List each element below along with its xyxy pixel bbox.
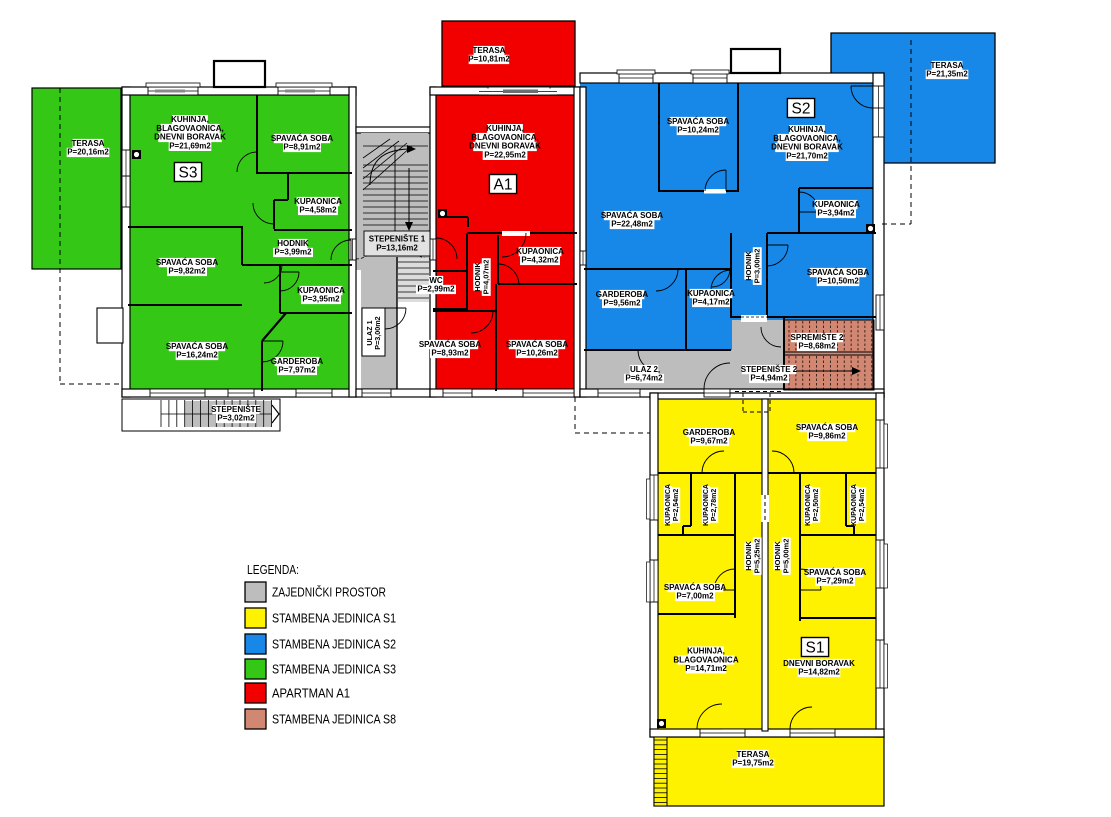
svg-text:DNEVNI BORAVAK: DNEVNI BORAVAK	[771, 143, 843, 152]
svg-text:P=2,99m2: P=2,99m2	[417, 285, 455, 294]
svg-text:TERASA: TERASA	[473, 46, 506, 55]
svg-text:KUPAONICA: KUPAONICA	[851, 484, 858, 526]
svg-text:P=2,78m2: P=2,78m2	[711, 489, 718, 522]
svg-text:P=7,00m2: P=7,00m2	[676, 592, 714, 601]
svg-text:P=9,82m2: P=9,82m2	[168, 267, 206, 276]
svg-text:KUPAONICA: KUPAONICA	[687, 289, 735, 298]
svg-text:DNEVNI BORAVAK: DNEVNI BORAVAK	[154, 133, 226, 142]
svg-text:P=21,70m2: P=21,70m2	[786, 152, 828, 161]
svg-text:STEPENIŠTE: STEPENIŠTE	[211, 405, 261, 414]
svg-text:KUPAONICA: KUPAONICA	[665, 484, 672, 526]
svg-text:P=9,67m2: P=9,67m2	[690, 437, 728, 446]
svg-text:GARDEROBA: GARDEROBA	[683, 428, 736, 437]
svg-text:TERASA: TERASA	[737, 750, 770, 759]
svg-text:SPAVAĆA SOBA: SPAVAĆA SOBA	[601, 211, 664, 220]
svg-text:P=22,95m2: P=22,95m2	[484, 151, 526, 160]
svg-text:KUPAONICA: KUPAONICA	[812, 200, 860, 209]
svg-text:P=8,91m2: P=8,91m2	[283, 143, 321, 152]
svg-text:P=7,29m2: P=7,29m2	[816, 577, 854, 586]
svg-text:TERASA: TERASA	[72, 139, 105, 148]
svg-text:BLAGOVAONICA,: BLAGOVAONICA,	[773, 134, 840, 143]
svg-text:P=20,16m2: P=20,16m2	[67, 148, 109, 157]
svg-text:SPAVAĆA SOBA: SPAVAĆA SOBA	[667, 117, 730, 126]
svg-text:P=14,82m2: P=14,82m2	[798, 668, 840, 677]
svg-text:SPAVAĆA SOBA: SPAVAĆA SOBA	[664, 583, 727, 592]
svg-text:KUHINJA,: KUHINJA,	[788, 125, 826, 134]
svg-text:KUPAONICA: KUPAONICA	[703, 484, 710, 526]
svg-text:P=9,56m2: P=9,56m2	[603, 299, 641, 308]
svg-text:P=4,07m2: P=4,07m2	[481, 260, 490, 295]
svg-text:TERASA: TERASA	[931, 61, 964, 70]
svg-text:KUPAONICA: KUPAONICA	[516, 247, 564, 256]
svg-text:KUHINJA,: KUHINJA,	[486, 124, 524, 133]
svg-text:P=4,17m2: P=4,17m2	[692, 298, 730, 307]
svg-text:P=4,94m2: P=4,94m2	[750, 374, 788, 383]
svg-text:P=3,00m2: P=3,00m2	[373, 316, 382, 349]
svg-text:S2: S2	[792, 101, 811, 118]
svg-text:A1: A1	[494, 177, 513, 194]
svg-text:STAMBENA JEDINICA S8: STAMBENA JEDINICA S8	[272, 712, 396, 727]
svg-text:LEGENDA:: LEGENDA:	[247, 562, 299, 577]
svg-text:STAMBENA JEDINICA S1: STAMBENA JEDINICA S1	[272, 611, 396, 626]
svg-text:P=4,32m2: P=4,32m2	[521, 256, 559, 265]
svg-text:P=5,25m2: P=5,25m2	[752, 539, 761, 574]
svg-text:BLAGOVAONICA,: BLAGOVAONICA,	[156, 124, 223, 133]
svg-text:P=21,35m2: P=21,35m2	[926, 70, 968, 79]
svg-text:P=3,99m2: P=3,99m2	[274, 248, 312, 257]
svg-text:STEPENIŠTE 1: STEPENIŠTE 1	[369, 235, 426, 244]
svg-text:SPAVAĆA SOBA: SPAVAĆA SOBA	[156, 258, 219, 267]
svg-text:P=16,24m2: P=16,24m2	[176, 351, 218, 360]
svg-text:P=6,74m2: P=6,74m2	[625, 374, 663, 383]
svg-text:SPAVAĆA SOBA: SPAVAĆA SOBA	[804, 568, 867, 577]
svg-text:P=8,93m2: P=8,93m2	[431, 349, 469, 358]
svg-text:P=9,86m2: P=9,86m2	[808, 432, 846, 441]
svg-text:P=2,54m2: P=2,54m2	[673, 489, 680, 522]
svg-text:P=5,00m2: P=5,00m2	[781, 539, 790, 574]
svg-text:P=3,94m2: P=3,94m2	[817, 209, 855, 218]
svg-text:S1: S1	[806, 640, 825, 657]
svg-text:SPAVAĆA SOBA: SPAVAĆA SOBA	[271, 134, 334, 143]
svg-text:STAMBENA JEDINICA S2: STAMBENA JEDINICA S2	[272, 637, 396, 652]
svg-text:APARTMAN A1: APARTMAN A1	[272, 686, 350, 701]
svg-text:P=2,50m2: P=2,50m2	[813, 489, 820, 522]
svg-text:SPREMIŠTE 2: SPREMIŠTE 2	[791, 333, 844, 342]
svg-text:P=22,48m2: P=22,48m2	[611, 220, 653, 229]
svg-text:P=10,50m2: P=10,50m2	[817, 277, 859, 286]
svg-text:KUHINJA,: KUHINJA,	[171, 115, 209, 124]
svg-text:SPAVAĆA SOBA: SPAVAĆA SOBA	[166, 342, 229, 351]
svg-text:P=3,02m2: P=3,02m2	[217, 414, 255, 423]
svg-text:P=3,00m2: P=3,00m2	[752, 249, 761, 284]
svg-text:STEPENIŠTE 2: STEPENIŠTE 2	[741, 365, 798, 374]
svg-text:ZAJEDNIČKI PROSTOR: ZAJEDNIČKI PROSTOR	[272, 585, 386, 600]
svg-text:P=7,97m2: P=7,97m2	[278, 366, 316, 375]
svg-text:SPAVAĆA SOBA: SPAVAĆA SOBA	[796, 423, 859, 432]
svg-text:P=13,16m2: P=13,16m2	[376, 244, 418, 253]
svg-text:GARDEROBA: GARDEROBA	[596, 290, 649, 299]
svg-text:ULAZ 2: ULAZ 2	[630, 365, 659, 374]
svg-text:BLAGOVAONICA,: BLAGOVAONICA,	[471, 133, 538, 142]
svg-text:SPAVAĆA SOBA: SPAVAĆA SOBA	[506, 340, 569, 349]
svg-text:HODNIK: HODNIK	[277, 239, 309, 248]
svg-text:BLAGOVAONICA: BLAGOVAONICA	[673, 655, 738, 664]
svg-text:P=10,26m2: P=10,26m2	[516, 349, 558, 358]
svg-text:P=10,24m2: P=10,24m2	[677, 126, 719, 135]
svg-text:DNEVNI BORAVAK: DNEVNI BORAVAK	[783, 659, 855, 668]
svg-text:KUPAONICA: KUPAONICA	[805, 484, 812, 526]
svg-text:P=8,68m2: P=8,68m2	[798, 342, 836, 351]
svg-text:STAMBENA JEDINICA S3: STAMBENA JEDINICA S3	[272, 662, 396, 677]
svg-text:KUPAONICA: KUPAONICA	[297, 286, 345, 295]
svg-text:SPAVAĆA SOBA: SPAVAĆA SOBA	[419, 340, 482, 349]
svg-text:P=14,71m2: P=14,71m2	[685, 664, 727, 673]
svg-text:P=4,58m2: P=4,58m2	[299, 206, 337, 215]
svg-text:P=2,54m2: P=2,54m2	[859, 489, 866, 522]
svg-text:S3: S3	[179, 165, 198, 182]
svg-text:SPAVAĆA SOBA: SPAVAĆA SOBA	[807, 268, 870, 277]
svg-text:GARDEROBA: GARDEROBA	[271, 357, 324, 366]
svg-text:P=3,95m2: P=3,95m2	[302, 295, 340, 304]
svg-text:WC: WC	[429, 276, 443, 285]
svg-text:P=19,75m2: P=19,75m2	[732, 759, 774, 768]
svg-text:KUPAONICA: KUPAONICA	[294, 197, 342, 206]
svg-text:KUHINJA,: KUHINJA,	[687, 646, 725, 655]
svg-text:P=10,81m2: P=10,81m2	[468, 55, 510, 64]
svg-text:DNEVNI BORAVAK: DNEVNI BORAVAK	[469, 142, 541, 151]
svg-text:P=21,69m2: P=21,69m2	[169, 142, 211, 151]
